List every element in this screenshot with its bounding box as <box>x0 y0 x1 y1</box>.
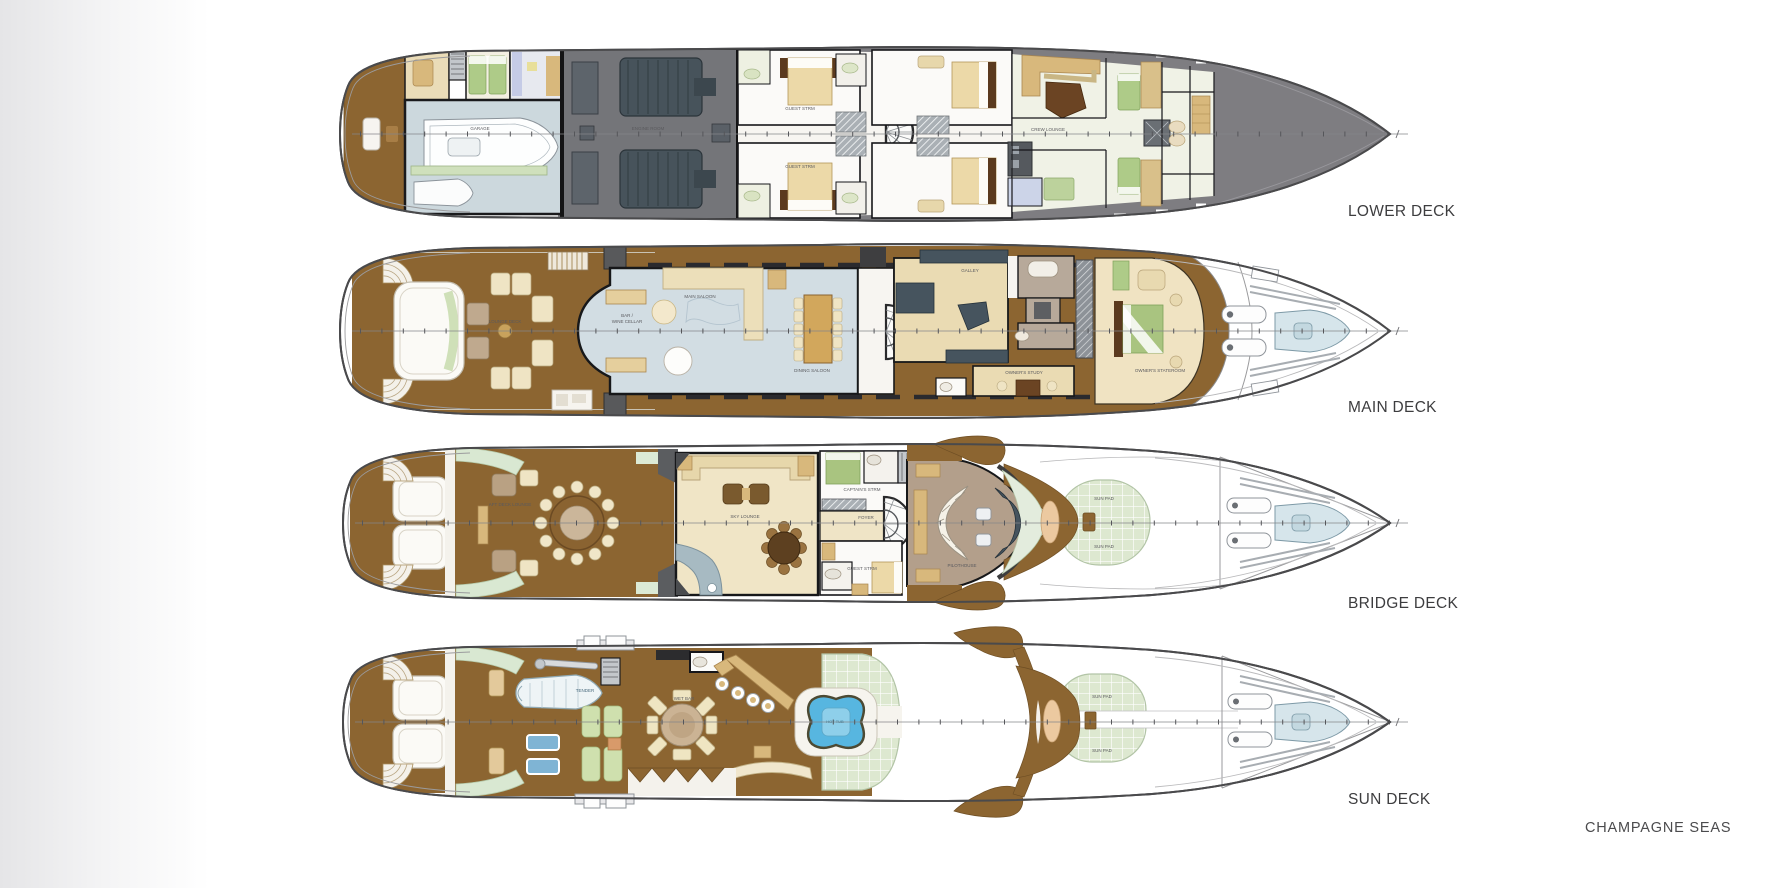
svg-text:GALLEY: GALLEY <box>961 268 979 273</box>
svg-text:WINE CELLAR: WINE CELLAR <box>612 319 643 324</box>
svg-text:HOT TUB: HOT TUB <box>826 719 844 724</box>
svg-text:OWNER'S STUDY: OWNER'S STUDY <box>1005 370 1043 375</box>
svg-text:SUN PAD: SUN PAD <box>1092 694 1112 699</box>
svg-text:LOUNGE DECK: LOUNGE DECK <box>489 319 522 324</box>
svg-text:GUEST STRM: GUEST STRM <box>785 164 815 169</box>
svg-text:DINING SALOON: DINING SALOON <box>794 368 830 373</box>
svg-text:GUEST STRM: GUEST STRM <box>785 106 815 111</box>
svg-text:SKY LOUNGE: SKY LOUNGE <box>730 514 759 519</box>
svg-text:PILOTHOUSE: PILOTHOUSE <box>947 563 976 568</box>
svg-text:TENDER: TENDER <box>576 688 595 693</box>
svg-text:AFT DECK LOUNGE: AFT DECK LOUNGE <box>489 502 531 507</box>
svg-text:CREW LOUNGE: CREW LOUNGE <box>1031 127 1065 132</box>
svg-text:FOYER: FOYER <box>858 515 874 520</box>
svg-text:ENGINE ROOM: ENGINE ROOM <box>632 126 665 131</box>
svg-text:BAR /: BAR / <box>621 313 634 318</box>
svg-text:SUN PAD: SUN PAD <box>1094 496 1114 501</box>
svg-text:MAIN SALOON: MAIN SALOON <box>684 294 715 299</box>
svg-text:SUN PAD: SUN PAD <box>1092 748 1112 753</box>
svg-text:GARAGE: GARAGE <box>470 126 489 131</box>
svg-text:WET BAR: WET BAR <box>674 696 695 701</box>
svg-text:OWNER'S STATEROOM: OWNER'S STATEROOM <box>1135 368 1185 373</box>
svg-text:GUEST STRM: GUEST STRM <box>847 566 877 571</box>
svg-text:CAPTAIN'S STRM: CAPTAIN'S STRM <box>843 487 880 492</box>
svg-text:SUN PAD: SUN PAD <box>1094 544 1114 549</box>
